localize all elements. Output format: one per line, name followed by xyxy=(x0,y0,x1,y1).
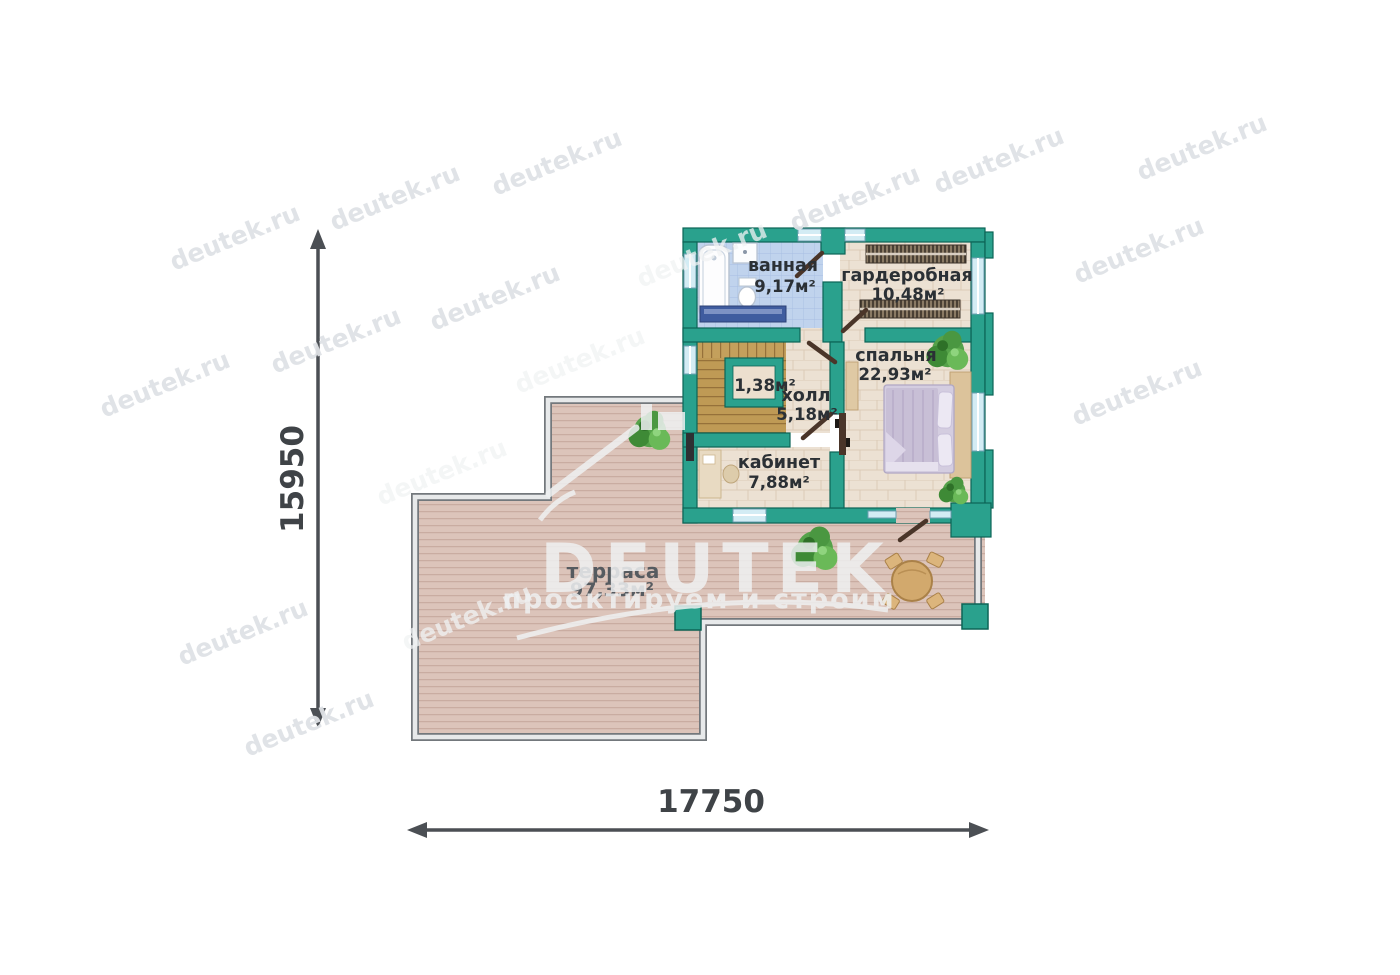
logo-tagline: проектируем и строим xyxy=(502,584,895,615)
watermark-text: deutek.ru xyxy=(929,121,1068,200)
niche-slot xyxy=(686,433,694,461)
watermark-text: deutek.ru xyxy=(1069,211,1208,290)
window-sill xyxy=(868,511,896,518)
bath-shelf xyxy=(700,306,786,322)
wall-office-top xyxy=(683,433,790,447)
pillow xyxy=(937,392,953,429)
hall-floor-upper xyxy=(800,328,823,342)
bedroom-label: спальня xyxy=(855,346,936,366)
pilaster xyxy=(985,313,993,395)
office-chair xyxy=(723,465,739,483)
corner-block xyxy=(951,503,991,537)
terrace-post xyxy=(962,604,988,629)
watermark-text: deutek.ru xyxy=(1132,108,1271,187)
watermark-text: deutek.ru xyxy=(266,301,405,380)
bed xyxy=(884,385,954,473)
wardrobe-area: 10,48м² xyxy=(872,285,945,304)
arrow-left-icon xyxy=(407,822,427,838)
dimension-vertical: 15950 xyxy=(275,229,326,728)
office-area: 7,88м² xyxy=(748,473,809,492)
cabinet xyxy=(846,362,858,410)
watermark-text: deutek.ru xyxy=(487,123,626,202)
pilaster xyxy=(985,232,993,258)
watermark-text: deutek.ru xyxy=(1067,353,1206,432)
watermark-text: deutek.ru xyxy=(95,345,234,424)
round-table xyxy=(892,561,932,601)
dimension-height-label: 15950 xyxy=(275,425,311,533)
bathroom-label: ванная xyxy=(748,256,818,276)
wardrobe-label: гардеробная xyxy=(841,266,972,286)
pilaster xyxy=(985,450,993,508)
office-label: кабинет xyxy=(738,453,821,473)
wall-hall-bedroom xyxy=(830,342,844,414)
watermark-text: deutek.ru xyxy=(239,684,378,763)
floor-plan-canvas: 15950 17750 xyxy=(0,0,1400,975)
wall-pier-top xyxy=(821,228,845,254)
hall-area: 5,18м² xyxy=(776,405,837,424)
watermark-text: deutek.ru xyxy=(510,321,649,400)
hall-label: холл xyxy=(782,386,831,406)
arrow-right-icon xyxy=(969,822,989,838)
arrow-up-icon xyxy=(310,229,326,249)
floor-plan-page: 15950 17750 xyxy=(0,0,1400,975)
wall-bath-wardrobe xyxy=(823,282,842,342)
bedroom-area: 22,93м² xyxy=(859,365,932,384)
pillow xyxy=(937,434,953,467)
bathroom-area: 9,17м² xyxy=(754,277,815,296)
watermark-text: deutek.ru xyxy=(325,158,464,237)
wall-hall-bedroom-lower xyxy=(830,452,844,508)
dimension-horizontal: 17750 xyxy=(407,784,989,838)
watermark-text: deutek.ru xyxy=(165,198,304,277)
hanger-rack xyxy=(866,245,966,263)
watermark-text: deutek.ru xyxy=(425,258,564,337)
watermark-text: deutek.ru xyxy=(173,593,312,672)
dimension-width-label: 17750 xyxy=(657,784,765,820)
wall-bath-bottom xyxy=(683,328,800,342)
window-sill xyxy=(930,511,951,518)
watermark-text: deutek.ru xyxy=(785,159,924,238)
